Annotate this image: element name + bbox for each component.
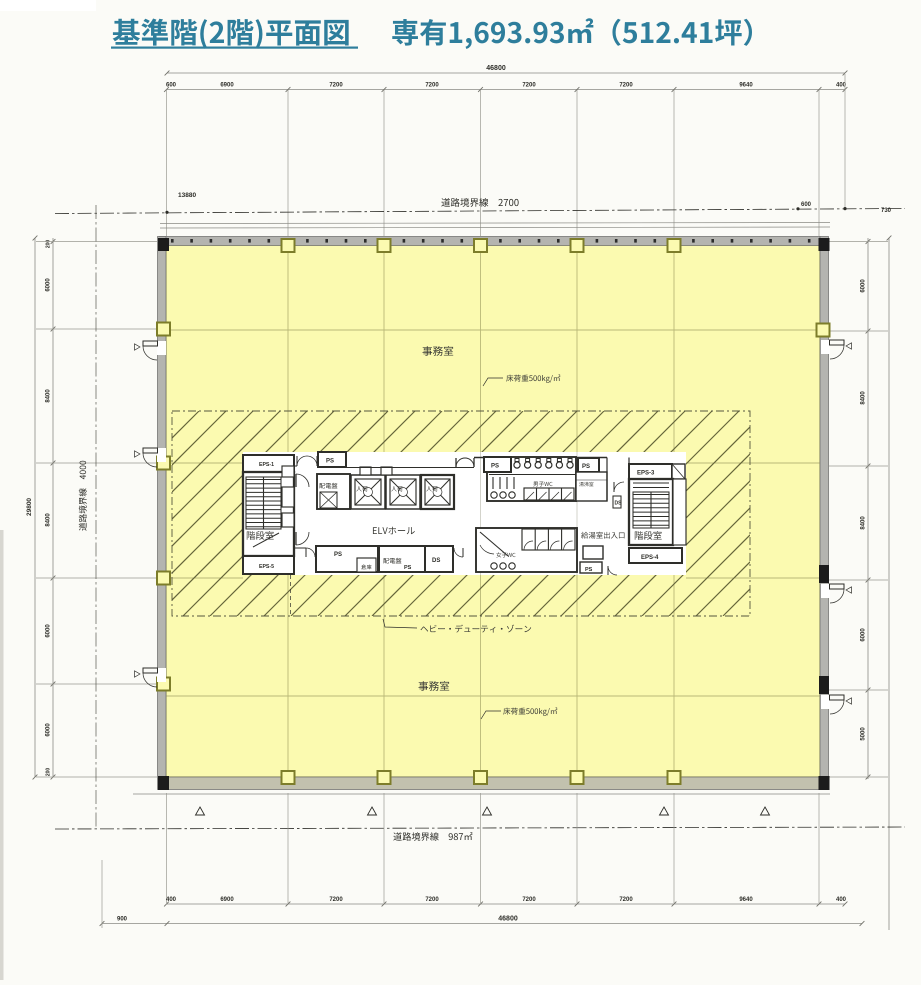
svg-text:PS: PS	[404, 565, 412, 571]
svg-text:6000: 6000	[46, 278, 52, 292]
svg-text:400: 400	[166, 897, 177, 903]
svg-text:9640: 9640	[739, 897, 753, 903]
svg-text:6000: 6000	[861, 279, 867, 293]
svg-text:900: 900	[117, 917, 128, 923]
svg-text:8400: 8400	[861, 516, 867, 530]
svg-text:7200: 7200	[329, 83, 343, 89]
svg-text:6000: 6000	[46, 624, 52, 638]
svg-text:7200: 7200	[425, 83, 439, 89]
svg-text:8400: 8400	[46, 389, 52, 403]
svg-text:400: 400	[836, 897, 847, 903]
svg-text:7200: 7200	[425, 897, 439, 903]
svg-text:PS: PS	[582, 464, 590, 470]
svg-text:29800: 29800	[26, 498, 33, 516]
svg-text:7200: 7200	[522, 83, 536, 89]
svg-text:7200: 7200	[619, 897, 633, 903]
svg-text:6900: 6900	[220, 897, 234, 903]
svg-text:8400: 8400	[46, 513, 52, 527]
svg-text:6000: 6000	[46, 723, 52, 737]
svg-text:600: 600	[801, 202, 812, 208]
svg-text:6900: 6900	[220, 83, 234, 89]
svg-text:7200: 7200	[619, 83, 633, 89]
svg-text:9640: 9640	[739, 83, 753, 89]
svg-text:7200: 7200	[329, 897, 343, 903]
svg-text:46800: 46800	[486, 65, 506, 72]
svg-text:PS: PS	[334, 552, 342, 558]
svg-text:200: 200	[46, 768, 52, 777]
svg-text:EPS-4: EPS-4	[641, 555, 659, 561]
svg-text:6000: 6000	[861, 628, 867, 642]
svg-text:13880: 13880	[178, 192, 196, 199]
svg-text:600: 600	[166, 83, 177, 89]
svg-text:730: 730	[881, 208, 892, 214]
svg-text:PS: PS	[491, 464, 499, 470]
svg-text:PS: PS	[585, 567, 593, 573]
svg-text:PS: PS	[326, 459, 334, 465]
svg-text:DS: DS	[615, 501, 623, 507]
svg-text:200: 200	[46, 240, 52, 249]
svg-text:5000: 5000	[861, 727, 867, 741]
svg-text:EPS-5: EPS-5	[259, 564, 274, 570]
svg-text:46800: 46800	[498, 916, 518, 923]
svg-text:8400: 8400	[861, 391, 867, 405]
svg-text:EPS-3: EPS-3	[637, 471, 655, 477]
svg-text:7200: 7200	[522, 897, 536, 903]
svg-text:EPS-1: EPS-1	[259, 462, 274, 468]
svg-text:DS: DS	[432, 558, 440, 564]
